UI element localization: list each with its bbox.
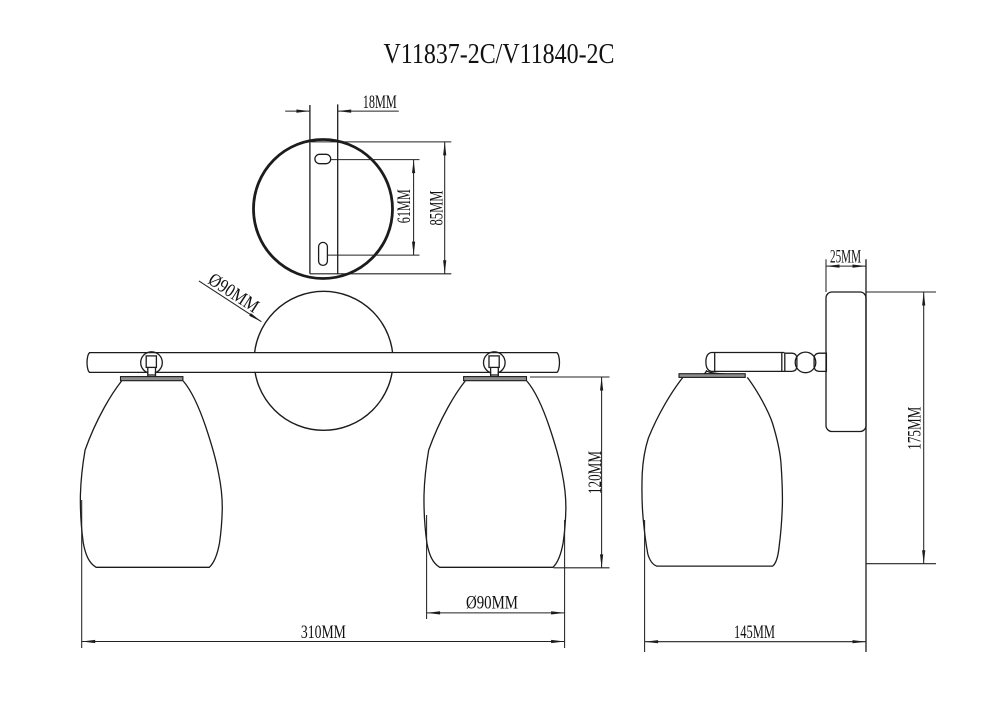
- svg-text:85MM: 85MM: [427, 190, 448, 225]
- svg-text:120MM: 120MM: [585, 451, 606, 494]
- svg-text:V11837-2C/V11840-2C: V11837-2C/V11840-2C: [384, 38, 615, 70]
- svg-text:61MM: 61MM: [394, 189, 415, 223]
- svg-text:18MM: 18MM: [363, 92, 397, 113]
- svg-text:145MM: 145MM: [734, 622, 775, 643]
- svg-text:310MM: 310MM: [301, 622, 346, 643]
- svg-text:175MM: 175MM: [905, 407, 926, 450]
- svg-text:Ø90MM: Ø90MM: [466, 593, 518, 614]
- svg-text:25MM: 25MM: [830, 247, 861, 268]
